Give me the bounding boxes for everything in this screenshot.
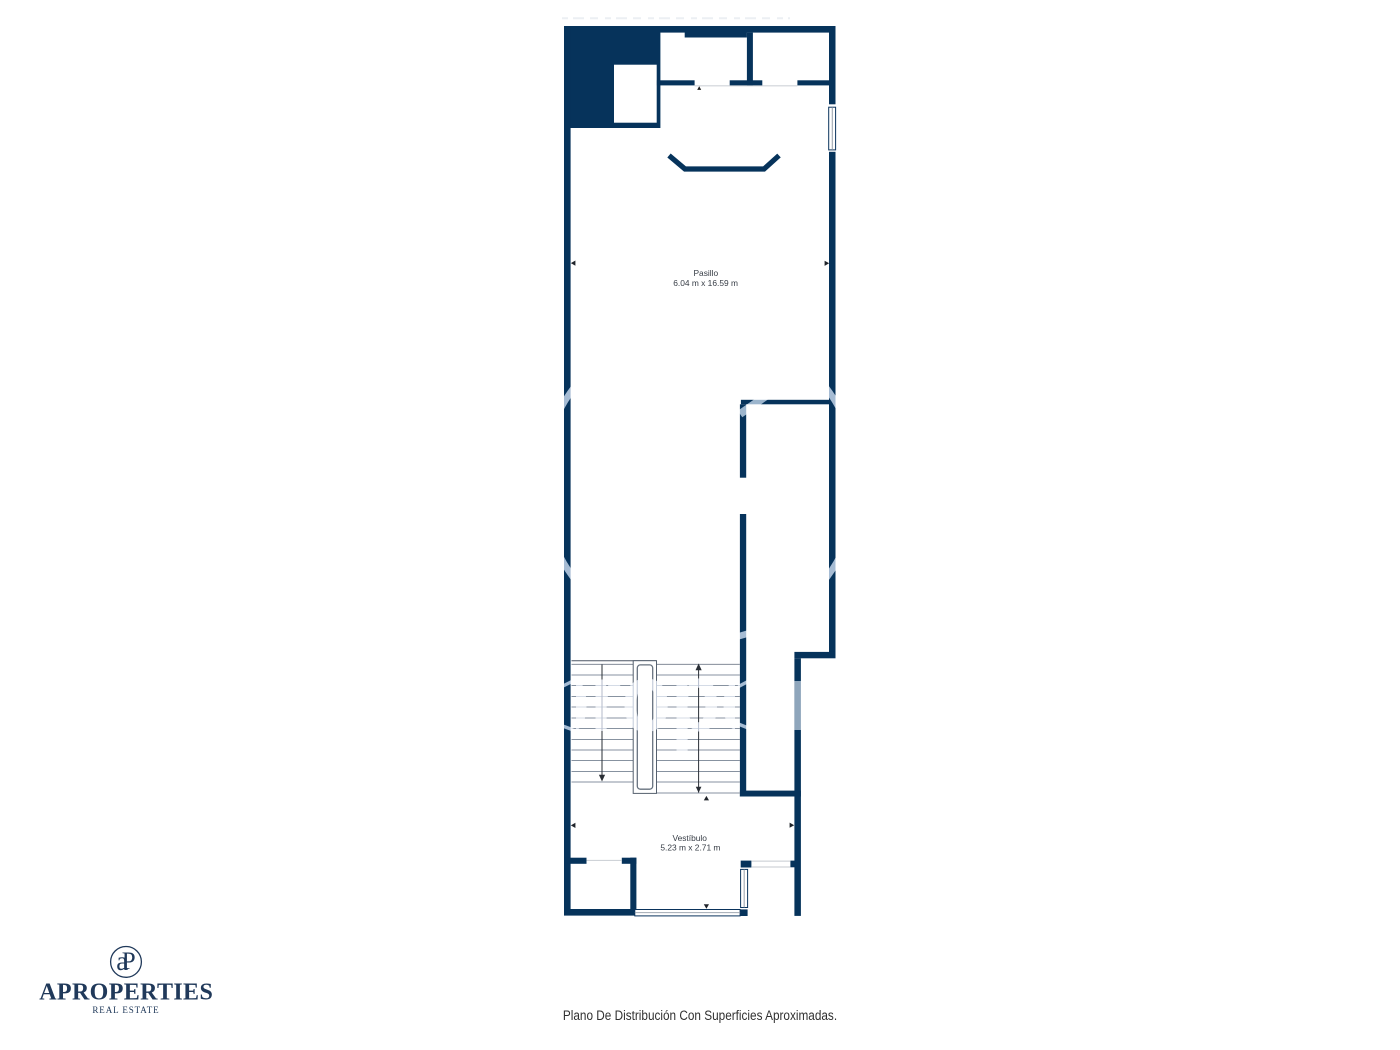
svg-text:Vestíbulo: Vestíbulo bbox=[672, 833, 707, 843]
svg-text:APROPERTIES: APROPERTIES bbox=[39, 980, 213, 1006]
svg-text:5.23 m x 2.71 m: 5.23 m x 2.71 m bbox=[660, 843, 720, 853]
svg-text:REAL ESTATE: REAL ESTATE bbox=[92, 1005, 159, 1015]
svg-text:Pasillo: Pasillo bbox=[693, 268, 718, 278]
svg-text:6.04 m x 16.59 m: 6.04 m x 16.59 m bbox=[673, 278, 738, 288]
svg-text:Plano De Distribución Con Supe: Plano De Distribución Con Superficies Ap… bbox=[563, 1008, 837, 1023]
svg-text:P: P bbox=[122, 948, 136, 975]
